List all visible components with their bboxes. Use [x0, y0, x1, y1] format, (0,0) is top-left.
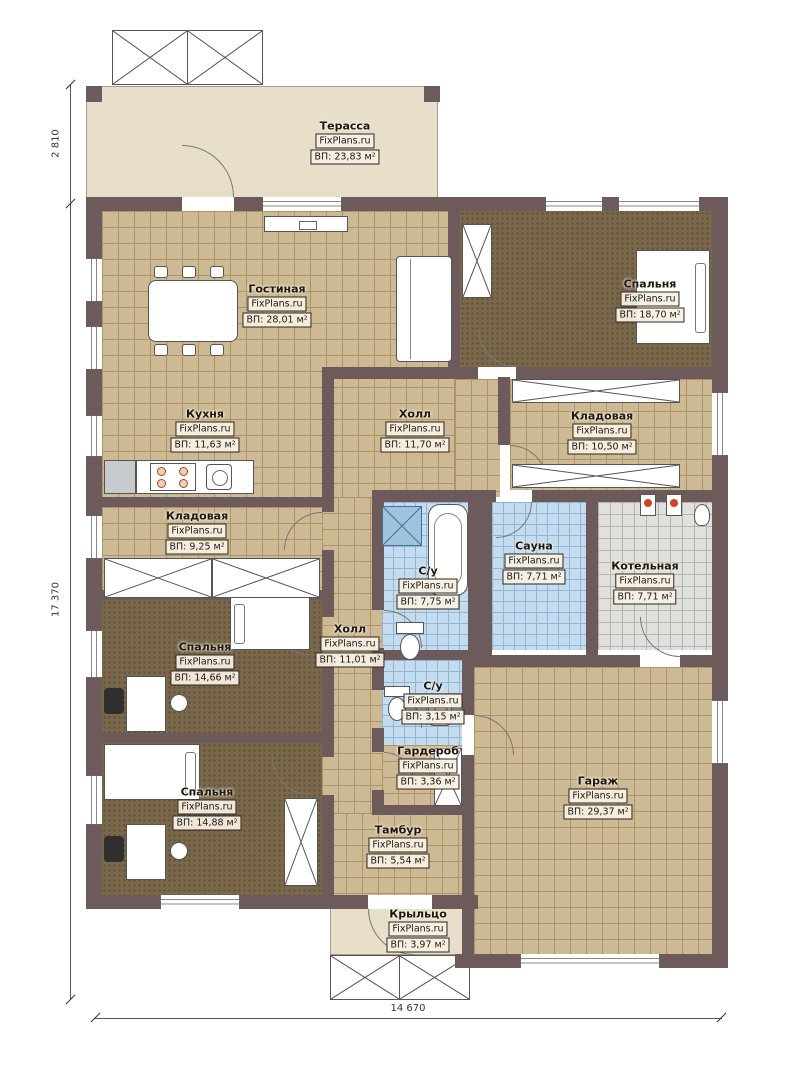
room-area: ВП: 11,01 м²	[315, 653, 384, 668]
stove	[150, 463, 196, 491]
window	[86, 775, 102, 825]
porch-steps	[330, 955, 400, 1000]
dim-terrace-height: 2 810	[51, 114, 62, 174]
room-area: ВП: 7,71 м²	[502, 570, 565, 585]
window	[86, 415, 102, 457]
room-label-storage1: Кладовая FixPlans.ru ВП: 10,50 м²	[567, 410, 636, 455]
door-arc	[640, 617, 680, 657]
toilet-bowl	[400, 634, 420, 660]
watermark: FixPlans.ru	[320, 637, 379, 652]
room-area: ВП: 18,70 м²	[615, 308, 684, 323]
window	[86, 326, 102, 370]
watermark: FixPlans.ru	[247, 297, 306, 312]
room-area: ВП: 29,37 м²	[563, 805, 632, 820]
x-lines	[113, 31, 187, 84]
window	[86, 258, 102, 302]
desk	[126, 676, 166, 732]
chair	[182, 344, 196, 356]
room-name: Тамбур	[375, 824, 422, 837]
room-name: Холл	[399, 408, 431, 421]
wall-segment	[474, 655, 640, 667]
watermark: FixPlans.ru	[388, 922, 447, 937]
room-name: Холл	[334, 623, 366, 636]
x-lines	[105, 559, 211, 597]
x-lines	[213, 559, 319, 597]
wall-segment	[322, 377, 334, 512]
chair	[154, 266, 168, 278]
dim-line-total-height	[70, 204, 71, 1000]
room-label-sauna: Сауна FixPlans.ru ВП: 7,71 м²	[502, 540, 565, 585]
room-area: ВП: 3,36 м²	[396, 775, 459, 790]
wardrobe-box	[212, 558, 320, 598]
x-lines	[513, 465, 679, 487]
watermark: FixPlans.ru	[615, 574, 674, 589]
wall-segment	[712, 197, 728, 968]
sofa-seat-line	[410, 259, 411, 359]
room-label-hall2: Холл FixPlans.ru ВП: 11,01 м²	[315, 623, 384, 668]
room-area: ВП: 7,75 м²	[396, 595, 459, 610]
chair	[210, 344, 224, 356]
watermark: FixPlans.ru	[403, 694, 462, 709]
valve	[670, 499, 678, 507]
wall-segment	[516, 367, 714, 379]
terrace-column	[424, 86, 440, 102]
room-label-boiler: Котельная FixPlans.ru ВП: 7,71 м²	[611, 560, 678, 605]
x-lines	[463, 225, 491, 297]
wardrobe-box	[462, 224, 492, 298]
room-name: Гараж	[578, 775, 619, 788]
window	[712, 700, 728, 764]
room-name: Сауна	[515, 540, 553, 553]
terrace-column	[86, 86, 102, 102]
floor-plan: 2 810 17 370 14 670	[0, 0, 792, 1080]
wardrobe-box	[512, 464, 680, 488]
watermark: FixPlans.ru	[315, 134, 374, 149]
room-label-bath2: С/у FixPlans.ru ВП: 3,15 м²	[401, 680, 464, 725]
watermark: FixPlans.ru	[368, 838, 427, 853]
fridge	[104, 460, 136, 494]
window	[712, 392, 728, 456]
terrace-steps	[187, 30, 263, 85]
window	[86, 515, 102, 559]
wall-segment	[86, 895, 160, 909]
wall-segment	[322, 550, 334, 617]
room-label-tambour: Тамбур FixPlans.ru ВП: 5,54 м²	[366, 824, 429, 869]
bed	[230, 596, 310, 650]
room-label-bedroom3: Спальня FixPlans.ru ВП: 14,88 м²	[172, 786, 241, 831]
room-name: Кладовая	[166, 510, 228, 523]
valve	[644, 499, 652, 507]
room-name: Гостиная	[248, 283, 305, 296]
room-name: Гардероб	[397, 745, 459, 758]
shower	[382, 506, 422, 546]
room-area: ВП: 9,25 м²	[165, 540, 228, 555]
x-lines	[331, 956, 399, 999]
dim-total-width: 14 670	[358, 1003, 458, 1014]
chair	[154, 344, 168, 356]
room-label-garage: Гараж FixPlans.ru ВП: 29,37 м²	[563, 775, 632, 820]
wall-segment	[240, 895, 368, 909]
watermark: FixPlans.ru	[167, 524, 226, 539]
wardrobe-box	[284, 798, 318, 886]
room-label-bath1: С/у FixPlans.ru ВП: 7,75 м²	[396, 565, 459, 610]
watermark: FixPlans.ru	[175, 422, 234, 437]
office-chair	[104, 836, 124, 862]
room-name: Кухня	[186, 408, 224, 421]
kitchen-sink	[206, 464, 232, 490]
chair	[182, 266, 196, 278]
watermark: FixPlans.ru	[177, 800, 236, 815]
x-lines	[285, 799, 317, 885]
sofa	[396, 256, 452, 362]
room-label-kitchen: Кухня FixPlans.ru ВП: 11,63 м²	[170, 408, 239, 453]
room-name: Котельная	[611, 560, 678, 573]
window	[262, 197, 342, 211]
wall-segment	[586, 490, 598, 660]
room-label-living: Гостиная FixPlans.ru ВП: 28,01 м²	[242, 283, 311, 328]
watermark: FixPlans.ru	[620, 292, 679, 307]
wall-segment	[322, 367, 478, 379]
window	[545, 197, 603, 211]
room-label-bedroom2: Спальня FixPlans.ru ВП: 14,66 м²	[170, 641, 239, 686]
room-label-porch: Крыльцо FixPlans.ru ВП: 3,97 м²	[386, 908, 449, 953]
window	[618, 197, 700, 211]
x-lines	[513, 380, 679, 402]
room-name: С/у	[423, 680, 442, 693]
wall-segment	[532, 490, 714, 502]
office-chair	[104, 688, 124, 714]
wall-segment	[462, 755, 474, 968]
burner	[157, 467, 166, 476]
watermark: FixPlans.ru	[398, 579, 457, 594]
watermark: FixPlans.ru	[568, 789, 627, 804]
room-area: ВП: 5,54 м²	[366, 854, 429, 869]
room-area: ВП: 28,01 м²	[242, 313, 311, 328]
boiler-unit	[640, 494, 656, 516]
watermark: FixPlans.ru	[175, 655, 234, 670]
room-area: ВП: 11,63 м²	[170, 438, 239, 453]
wall-segment	[498, 377, 510, 445]
wall-segment	[660, 954, 728, 968]
desk-chair	[170, 694, 188, 712]
burner	[179, 467, 188, 476]
room-label-terrace: Терасса FixPlans.ru ВП: 23,83 м²	[310, 120, 379, 165]
watermark: FixPlans.ru	[398, 759, 457, 774]
wall-segment	[468, 490, 492, 660]
room-area: ВП: 11,70 м²	[380, 438, 449, 453]
room-area: ВП: 23,83 м²	[310, 150, 379, 165]
room-area: ВП: 7,71 м²	[613, 590, 676, 605]
window	[160, 895, 240, 909]
x-lines	[188, 31, 262, 84]
room-name: Терасса	[320, 120, 371, 133]
watermark: FixPlans.ru	[385, 422, 444, 437]
wall-segment	[322, 655, 334, 757]
chair	[210, 266, 224, 278]
room-label-hall1: Холл FixPlans.ru ВП: 11,70 м²	[380, 408, 449, 453]
boiler-sink	[694, 504, 710, 526]
pillow	[695, 263, 706, 333]
dim-total-height: 17 370	[51, 570, 62, 630]
room-name: Спальня	[624, 278, 677, 291]
wall-segment	[372, 650, 474, 660]
room-name: Спальня	[181, 786, 234, 799]
sink-bowl	[212, 470, 228, 486]
toilet-tank	[396, 622, 424, 634]
tv-unit	[264, 216, 348, 232]
room-name: Спальня	[179, 641, 232, 654]
watermark: FixPlans.ru	[504, 554, 563, 569]
x-lines	[383, 507, 421, 545]
wall-segment	[372, 728, 384, 752]
window	[86, 630, 102, 678]
desk	[126, 824, 166, 880]
room-name: Крыльцо	[389, 908, 447, 921]
room-label-wardrobe: Гардероб FixPlans.ru ВП: 3,36 м²	[396, 745, 459, 790]
hall1-floor	[455, 379, 500, 497]
tv	[299, 221, 317, 230]
wardrobe-box	[104, 558, 212, 598]
burner	[179, 479, 188, 488]
terrace-door-opening	[182, 197, 234, 211]
room-name: Кладовая	[571, 410, 633, 423]
room-area: ВП: 14,66 м²	[170, 671, 239, 686]
wall-segment	[102, 733, 322, 743]
wall-segment	[372, 805, 474, 815]
room-label-storage2: Кладовая FixPlans.ru ВП: 9,25 м²	[165, 510, 228, 555]
room-name: С/у	[418, 565, 437, 578]
boiler-unit	[666, 494, 682, 516]
watermark: FixPlans.ru	[572, 424, 631, 439]
room-area: ВП: 3,97 м²	[386, 938, 449, 953]
wardrobe-box	[512, 379, 680, 403]
room-area: ВП: 3,15 м²	[401, 710, 464, 725]
desk-chair	[170, 842, 188, 860]
room-area: ВП: 10,50 м²	[567, 440, 636, 455]
room-label-bedroom1: Спальня FixPlans.ru ВП: 18,70 м²	[615, 278, 684, 323]
wall-segment	[102, 497, 322, 507]
terrace-steps	[112, 30, 188, 85]
dim-line-terrace-height	[70, 85, 71, 204]
terrace-floor	[86, 86, 438, 204]
room-area: ВП: 14,88 м²	[172, 816, 241, 831]
dim-line-total-width	[95, 1018, 722, 1019]
dining-table	[148, 280, 238, 342]
garage-door	[520, 954, 660, 968]
wall-segment	[322, 795, 334, 895]
burner	[157, 479, 166, 488]
wall-segment	[680, 655, 714, 667]
pillow	[234, 604, 245, 644]
